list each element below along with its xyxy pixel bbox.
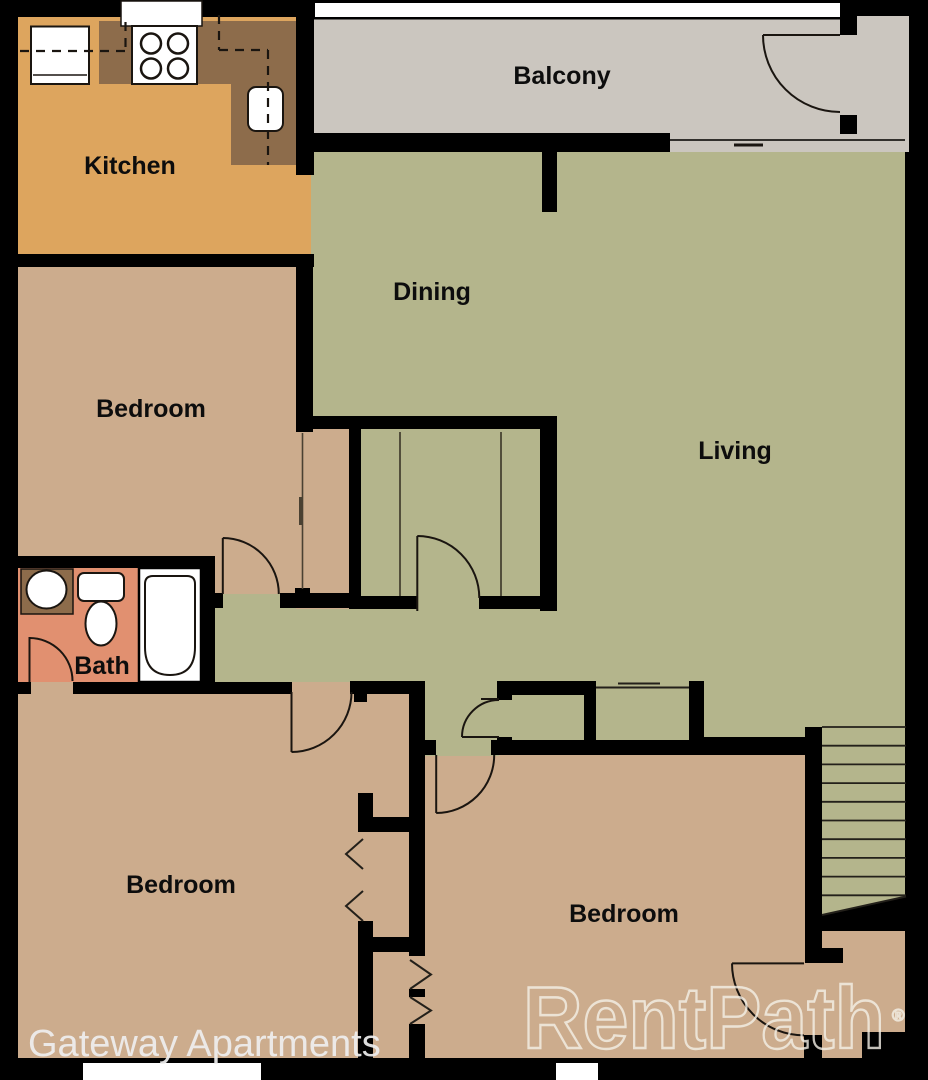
svg-text:RentPath: RentPath	[523, 968, 885, 1067]
svg-text:Bedroom: Bedroom	[126, 871, 236, 899]
svg-text:Gateway Apartments: Gateway Apartments	[28, 1023, 381, 1065]
svg-text:Balcony: Balcony	[513, 62, 610, 90]
svg-text:Dining: Dining	[393, 278, 471, 306]
svg-text:Bedroom: Bedroom	[569, 900, 679, 928]
svg-text:Living: Living	[698, 437, 772, 465]
svg-text:Bath: Bath	[74, 652, 130, 680]
svg-text:Bedroom: Bedroom	[96, 395, 206, 423]
svg-text:Kitchen: Kitchen	[84, 152, 176, 180]
svg-text:®: ®	[892, 1006, 905, 1025]
